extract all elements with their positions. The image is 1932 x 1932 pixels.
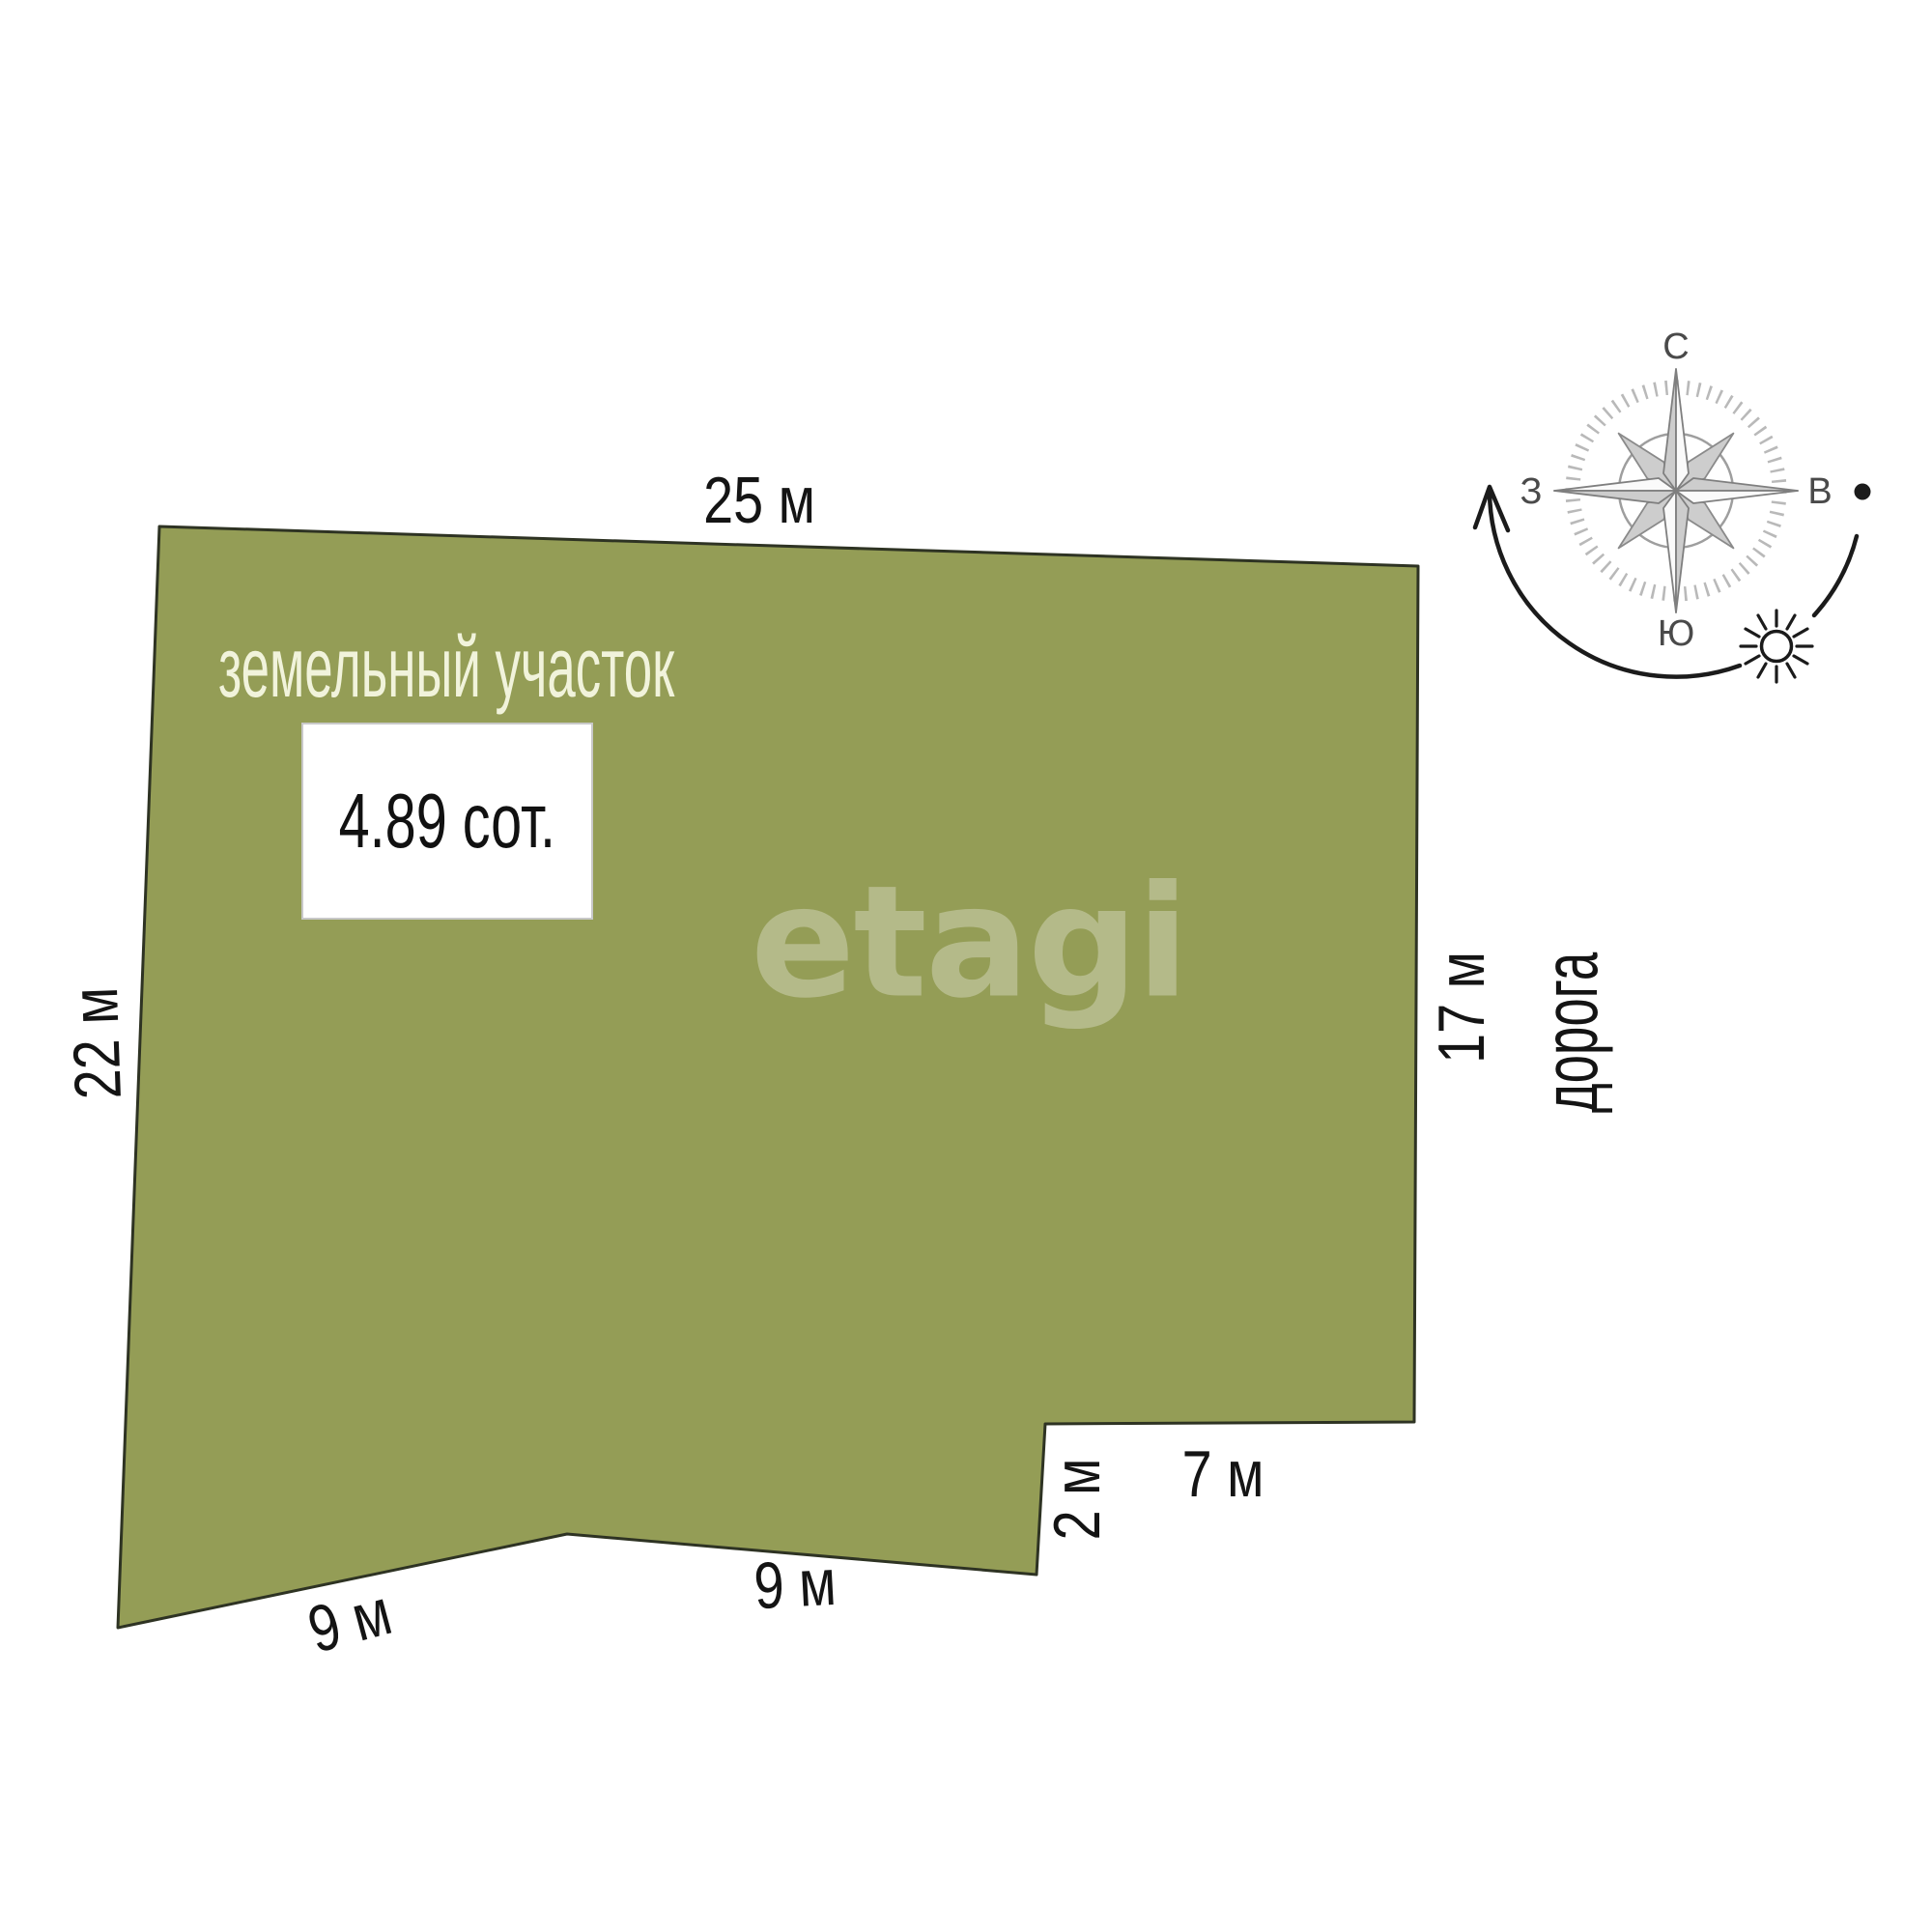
compass-rose-icon: С Ю З В <box>1520 327 1833 654</box>
dimension-label-top: 25 м <box>703 463 815 538</box>
dimension-label-bottom-middle: 9 м <box>753 1545 838 1624</box>
dimension-label-right: 17 м <box>1424 952 1499 1064</box>
compass-east-label: В <box>1807 471 1832 512</box>
watermark: etagi <box>751 852 1187 1033</box>
compass-north-label: С <box>1662 327 1689 367</box>
area-box: 4.89 сот. <box>301 723 593 920</box>
road-label: дорога <box>1526 952 1615 1113</box>
plot-title: земельный участок <box>218 618 674 717</box>
east-dot-icon <box>1855 484 1871 500</box>
area-value: 4.89 сот. <box>339 777 555 866</box>
dimension-label-left: 22 м <box>57 986 136 1101</box>
land-plot-plan: С Ю З В земельный <box>0 0 1932 1932</box>
dimension-label-notch-horizontal: 7 м <box>1182 1436 1264 1512</box>
compass-south-label: Ю <box>1658 613 1694 654</box>
compass-west-label: З <box>1520 471 1543 512</box>
dimension-label-notch-vertical: 2 м <box>1039 1459 1115 1541</box>
compass-cardinal-points <box>1554 369 1798 612</box>
sun-icon <box>1741 611 1812 682</box>
